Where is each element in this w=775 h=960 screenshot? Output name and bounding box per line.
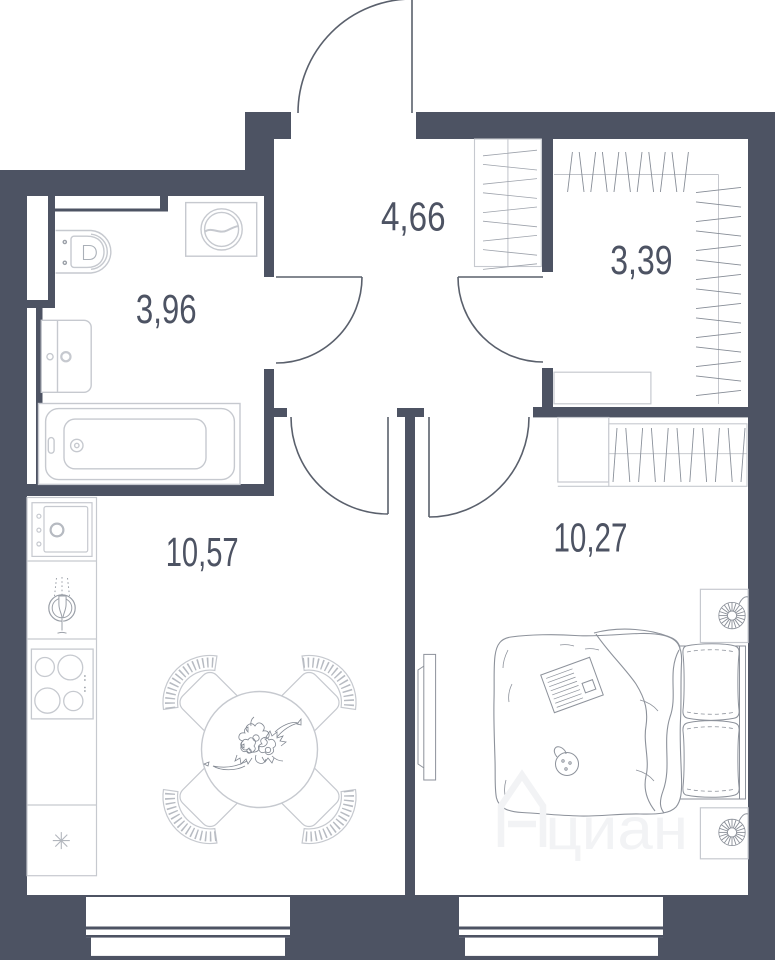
svg-text:3,96: 3,96 [136, 286, 197, 332]
svg-text:10,57: 10,57 [166, 530, 239, 575]
svg-text:10,27: 10,27 [553, 515, 627, 561]
svg-text:циан: циан [545, 796, 688, 862]
svg-text:3,39: 3,39 [610, 237, 672, 282]
svg-text:4,66: 4,66 [381, 193, 446, 239]
